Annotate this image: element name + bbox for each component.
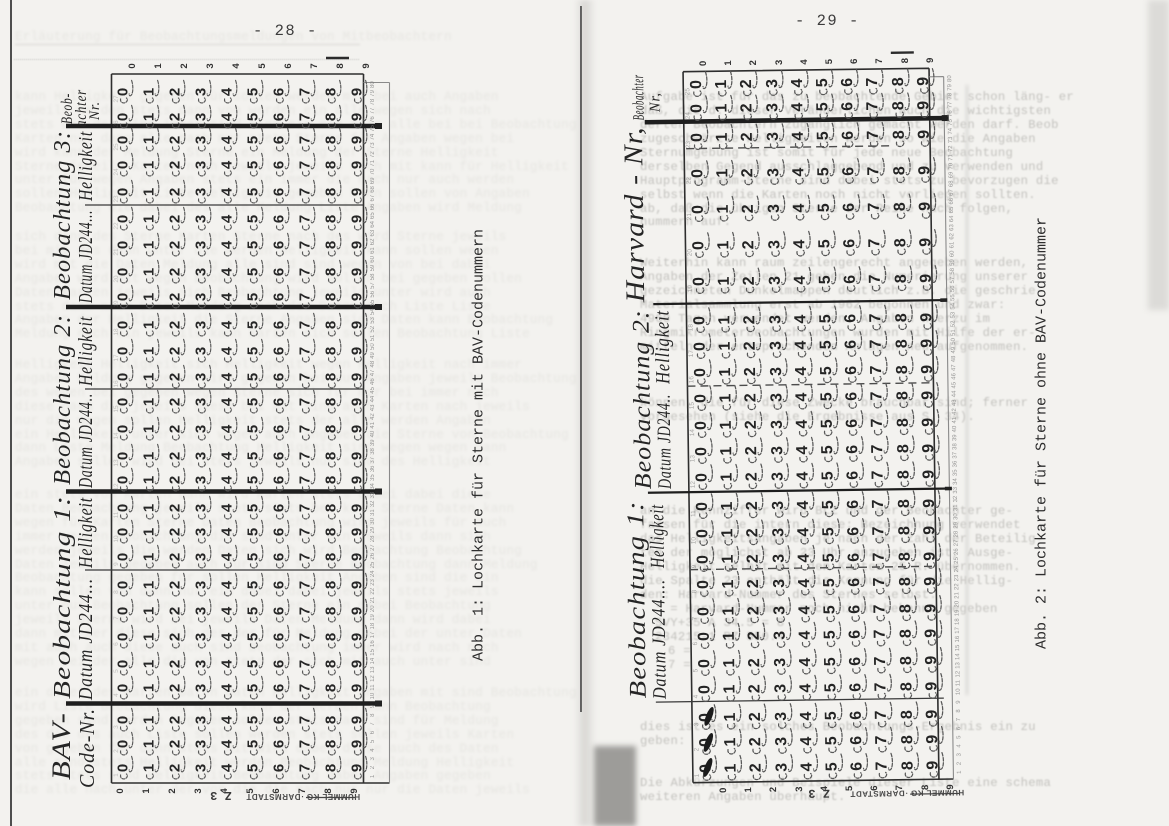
- svg-text:2: 2: [768, 787, 779, 792]
- svg-text:4: 4: [231, 63, 242, 69]
- svg-text:25: 25: [370, 561, 376, 568]
- svg-text:5: 5: [370, 739, 376, 743]
- svg-text:10: 10: [691, 537, 698, 545]
- svg-text:75: 75: [948, 118, 954, 125]
- svg-text:0: 0: [718, 787, 729, 792]
- svg-text:20: 20: [113, 275, 120, 283]
- svg-text:43: 43: [370, 404, 376, 411]
- svg-text:Beobachter: Beobachter: [630, 74, 648, 120]
- svg-text:46: 46: [951, 372, 957, 379]
- svg-text:54: 54: [370, 308, 376, 315]
- svg-text:11: 11: [956, 679, 962, 686]
- svg-text:15: 15: [113, 405, 120, 413]
- svg-text:2: 2: [370, 765, 376, 769]
- svg-text:15: 15: [689, 402, 696, 410]
- svg-text:43: 43: [952, 399, 958, 406]
- svg-text:57: 57: [950, 276, 956, 283]
- svg-text:22: 22: [370, 587, 376, 594]
- svg-text:2: 2: [179, 63, 190, 68]
- svg-text:17: 17: [370, 631, 376, 638]
- svg-text:HUMMEL KG ·DARMSTADT: HUMMEL KG ·DARMSTADT: [246, 792, 360, 801]
- svg-text:80: 80: [947, 75, 953, 82]
- svg-text:16: 16: [370, 640, 376, 647]
- svg-text:53: 53: [950, 311, 956, 318]
- svg-text:29: 29: [370, 526, 376, 533]
- svg-text:9: 9: [956, 700, 962, 704]
- svg-text:2: 2: [957, 761, 963, 765]
- svg-text:1: 1: [113, 773, 120, 777]
- svg-text:50: 50: [951, 337, 957, 344]
- svg-text:74: 74: [948, 127, 954, 134]
- svg-text:61: 61: [949, 241, 955, 248]
- svg-text:3: 3: [774, 60, 785, 65]
- svg-text:73: 73: [948, 136, 954, 143]
- svg-text:6: 6: [956, 726, 962, 730]
- svg-text:6: 6: [692, 641, 699, 645]
- svg-text:37: 37: [370, 456, 376, 463]
- svg-text:21: 21: [113, 248, 120, 256]
- svg-text:59: 59: [950, 258, 956, 265]
- svg-text:45: 45: [370, 386, 376, 393]
- svg-text:3: 3: [693, 722, 700, 726]
- svg-text:Datum JD244..: Datum JD244..: [75, 393, 97, 489]
- svg-text:Helligkeit: Helligkeit: [75, 131, 97, 202]
- svg-text:72: 72: [370, 151, 376, 158]
- svg-text:27: 27: [370, 544, 376, 551]
- svg-text:23: 23: [954, 574, 960, 581]
- svg-text:16: 16: [113, 380, 120, 388]
- svg-text:26: 26: [370, 552, 376, 559]
- svg-text:31: 31: [953, 504, 959, 511]
- svg-text:19: 19: [687, 285, 694, 293]
- svg-text:9: 9: [925, 58, 936, 63]
- svg-text:24: 24: [954, 565, 960, 572]
- svg-text:34: 34: [953, 477, 959, 484]
- svg-text:68: 68: [370, 185, 376, 192]
- svg-text:40: 40: [370, 430, 376, 437]
- svg-text:20: 20: [687, 249, 694, 257]
- svg-text:63: 63: [949, 223, 955, 230]
- svg-text:22: 22: [954, 583, 960, 590]
- svg-text:32: 32: [953, 495, 959, 502]
- svg-text:54: 54: [950, 302, 956, 309]
- svg-text:25: 25: [954, 556, 960, 563]
- svg-text:66: 66: [949, 197, 955, 204]
- svg-text:4: 4: [693, 694, 700, 698]
- svg-text:21: 21: [370, 596, 376, 603]
- svg-text:14: 14: [113, 432, 120, 440]
- svg-text:64: 64: [370, 220, 376, 227]
- svg-text:63: 63: [370, 229, 376, 236]
- svg-text:18: 18: [113, 328, 120, 336]
- svg-text:2: 2: [693, 747, 700, 751]
- svg-text:30: 30: [370, 517, 376, 524]
- svg-text:36: 36: [370, 465, 376, 472]
- svg-text:Nr.: Nr.: [87, 101, 103, 121]
- svg-text:6: 6: [283, 63, 294, 68]
- svg-text:67: 67: [370, 194, 376, 201]
- svg-text:74: 74: [370, 133, 376, 140]
- svg-text:66: 66: [370, 203, 376, 210]
- svg-text:39: 39: [952, 434, 958, 441]
- svg-text:13: 13: [113, 459, 120, 467]
- svg-text:8: 8: [370, 713, 376, 717]
- svg-text:58: 58: [950, 267, 956, 274]
- svg-text:1: 1: [153, 63, 164, 69]
- svg-text:42: 42: [370, 413, 376, 420]
- svg-text:64: 64: [949, 215, 955, 222]
- svg-text:20: 20: [954, 600, 960, 607]
- svg-text:Harvard - Nr,: Harvard - Nr,: [618, 126, 650, 304]
- svg-text:12: 12: [955, 670, 961, 677]
- svg-text:10: 10: [956, 688, 962, 695]
- svg-text:Beobachtung 2:: Beobachtung 2:: [50, 314, 76, 485]
- svg-text:59: 59: [370, 264, 376, 271]
- svg-text:13: 13: [689, 455, 696, 463]
- svg-text:62: 62: [370, 238, 376, 245]
- svg-text:48: 48: [370, 360, 376, 367]
- svg-text:1: 1: [370, 774, 376, 778]
- svg-text:69: 69: [370, 177, 376, 184]
- svg-text:62: 62: [949, 232, 955, 239]
- svg-text:11: 11: [690, 510, 697, 517]
- svg-text:5: 5: [692, 668, 699, 672]
- svg-text:3: 3: [370, 757, 376, 761]
- svg-text:Z 3: Z 3: [210, 788, 232, 802]
- svg-text:71: 71: [948, 153, 954, 160]
- svg-text:26: 26: [954, 548, 960, 555]
- svg-text:15: 15: [370, 648, 376, 655]
- svg-text:65: 65: [370, 212, 376, 219]
- svg-text:71: 71: [370, 159, 376, 166]
- svg-text:35: 35: [953, 469, 959, 476]
- svg-text:Nr,: Nr,: [647, 92, 663, 113]
- svg-text:Datum JD244...: Datum JD244...: [75, 578, 97, 701]
- svg-text:15: 15: [955, 644, 961, 651]
- svg-text:78: 78: [947, 92, 953, 99]
- svg-text:6: 6: [370, 730, 376, 734]
- svg-text:68: 68: [949, 180, 955, 187]
- svg-text:26: 26: [113, 120, 120, 128]
- svg-text:79: 79: [947, 83, 953, 90]
- svg-text:3: 3: [193, 788, 204, 793]
- svg-text:69: 69: [948, 171, 954, 178]
- svg-text:0: 0: [115, 788, 126, 793]
- svg-text:Datum JD244..: Datum JD244..: [654, 394, 676, 490]
- svg-text:27: 27: [113, 95, 120, 103]
- svg-text:BAV-: BAV-: [47, 712, 76, 780]
- svg-text:8: 8: [113, 590, 120, 594]
- svg-text:24: 24: [113, 168, 120, 176]
- svg-text:11: 11: [370, 684, 376, 691]
- svg-text:49: 49: [951, 346, 957, 353]
- svg-text:78: 78: [370, 98, 376, 105]
- svg-text:28: 28: [370, 535, 376, 542]
- svg-text:1: 1: [694, 773, 701, 777]
- svg-text:17: 17: [688, 350, 695, 358]
- svg-text:8: 8: [691, 589, 698, 593]
- svg-text:22: 22: [113, 222, 120, 230]
- svg-text:35: 35: [370, 474, 376, 481]
- svg-text:12: 12: [370, 675, 376, 682]
- svg-text:7: 7: [309, 63, 320, 68]
- svg-text:Beobachtung 3:: Beobachtung 3:: [50, 130, 76, 300]
- svg-text:12: 12: [690, 481, 697, 489]
- svg-text:6: 6: [849, 59, 860, 64]
- svg-text:37: 37: [952, 451, 958, 458]
- svg-text:7: 7: [370, 722, 376, 726]
- svg-text:6: 6: [113, 642, 120, 646]
- svg-text:19: 19: [955, 609, 961, 616]
- svg-text:77: 77: [947, 101, 953, 108]
- svg-text:5: 5: [113, 669, 120, 673]
- svg-text:9: 9: [361, 63, 372, 68]
- svg-text:39: 39: [370, 439, 376, 446]
- svg-text:18: 18: [955, 618, 961, 625]
- svg-text:61: 61: [370, 247, 376, 254]
- svg-text:73: 73: [370, 142, 376, 149]
- svg-text:46: 46: [370, 378, 376, 385]
- svg-text:9: 9: [113, 562, 120, 566]
- svg-text:25: 25: [113, 143, 120, 151]
- svg-text:3: 3: [205, 63, 216, 68]
- svg-text:36: 36: [953, 460, 959, 467]
- svg-text:40: 40: [952, 425, 958, 432]
- svg-text:52: 52: [951, 320, 957, 327]
- svg-text:4: 4: [113, 693, 120, 697]
- svg-text:50: 50: [370, 343, 376, 350]
- svg-text:4: 4: [370, 748, 376, 752]
- svg-text:8: 8: [335, 63, 346, 68]
- svg-text:14: 14: [689, 429, 696, 437]
- svg-text:72: 72: [948, 145, 954, 152]
- svg-text:0: 0: [127, 63, 138, 68]
- svg-text:24: 24: [370, 570, 376, 577]
- svg-text:18: 18: [688, 324, 695, 332]
- svg-text:29: 29: [953, 521, 959, 528]
- svg-text:5: 5: [257, 63, 268, 69]
- svg-text:42: 42: [952, 407, 958, 414]
- svg-text:47: 47: [951, 364, 957, 371]
- svg-text:44: 44: [370, 395, 376, 402]
- svg-text:20: 20: [370, 605, 376, 612]
- svg-text:13: 13: [955, 661, 961, 668]
- svg-text:2: 2: [748, 60, 759, 65]
- svg-text:23: 23: [685, 141, 692, 149]
- svg-text:76: 76: [370, 116, 376, 123]
- svg-text:51: 51: [951, 329, 957, 336]
- svg-text:7: 7: [692, 616, 699, 620]
- svg-text:Helligkeit: Helligkeit: [651, 310, 674, 385]
- svg-text:0: 0: [698, 61, 709, 66]
- svg-text:31: 31: [370, 509, 376, 516]
- svg-text:65: 65: [949, 206, 955, 213]
- svg-text:80: 80: [370, 81, 376, 88]
- svg-text:21: 21: [686, 213, 693, 221]
- svg-text:47: 47: [370, 369, 376, 376]
- svg-text:14: 14: [955, 653, 961, 660]
- svg-text:57: 57: [370, 282, 376, 289]
- svg-text:21: 21: [954, 591, 960, 598]
- svg-text:2: 2: [113, 749, 120, 753]
- svg-text:Code-Nr.: Code-Nr.: [75, 708, 99, 788]
- svg-text:52: 52: [370, 325, 376, 332]
- svg-text:38: 38: [370, 447, 376, 454]
- svg-text:32: 32: [370, 500, 376, 507]
- svg-text:12: 12: [113, 483, 120, 491]
- svg-text:11: 11: [113, 511, 120, 518]
- svg-text:14: 14: [370, 657, 376, 664]
- svg-text:75: 75: [370, 124, 376, 131]
- svg-text:7: 7: [956, 717, 962, 721]
- svg-text:8: 8: [956, 709, 962, 713]
- svg-text:25: 25: [684, 88, 691, 96]
- svg-text:70: 70: [370, 168, 376, 175]
- svg-text:2: 2: [167, 788, 178, 793]
- svg-text:9: 9: [691, 564, 698, 568]
- svg-text:18: 18: [370, 622, 376, 629]
- svg-text:3: 3: [957, 752, 963, 756]
- svg-text:24: 24: [685, 112, 692, 120]
- svg-text:4: 4: [956, 744, 962, 748]
- svg-text:1: 1: [141, 788, 152, 794]
- svg-text:34: 34: [370, 482, 376, 489]
- svg-text:51: 51: [370, 334, 376, 341]
- svg-text:4: 4: [799, 59, 810, 65]
- svg-text:1: 1: [723, 60, 734, 66]
- svg-text:49: 49: [370, 351, 376, 358]
- svg-text:33: 33: [370, 491, 376, 498]
- svg-text:23: 23: [370, 578, 376, 585]
- svg-text:16: 16: [688, 376, 695, 384]
- svg-text:19: 19: [113, 300, 120, 308]
- svg-text:19: 19: [370, 613, 376, 620]
- svg-text:70: 70: [948, 162, 954, 169]
- svg-text:Helligkeit: Helligkeit: [75, 316, 97, 387]
- svg-text:79: 79: [370, 89, 376, 96]
- svg-text:55: 55: [950, 294, 956, 301]
- svg-text:3: 3: [113, 725, 120, 729]
- svg-text:3: 3: [794, 786, 805, 791]
- svg-text:17: 17: [955, 626, 961, 633]
- svg-text:41: 41: [952, 416, 958, 423]
- svg-text:16: 16: [955, 635, 961, 642]
- svg-text:44: 44: [952, 390, 958, 397]
- svg-text:Datum JD244...: Datum JD244...: [75, 210, 97, 304]
- svg-text:41: 41: [370, 421, 376, 428]
- svg-text:1: 1: [743, 786, 754, 792]
- svg-text:10: 10: [370, 692, 376, 699]
- svg-text:28: 28: [953, 530, 959, 537]
- svg-text:Datum JD244....: Datum JD244....: [648, 579, 671, 700]
- svg-text:67: 67: [949, 188, 955, 195]
- svg-text:33: 33: [953, 486, 959, 493]
- svg-text:58: 58: [370, 273, 376, 280]
- svg-text:13: 13: [370, 666, 376, 673]
- svg-text:38: 38: [952, 442, 958, 449]
- svg-text:56: 56: [950, 285, 956, 292]
- svg-text:Z 3: Z 3: [808, 786, 830, 800]
- svg-text:60: 60: [950, 250, 956, 257]
- svg-text:5: 5: [824, 58, 835, 64]
- svg-text:7: 7: [874, 58, 885, 63]
- svg-text:23: 23: [113, 195, 120, 203]
- svg-text:Helligkeit: Helligkeit: [75, 497, 97, 569]
- svg-text:48: 48: [951, 355, 957, 362]
- svg-text:77: 77: [370, 107, 376, 114]
- svg-text:76: 76: [948, 110, 954, 117]
- svg-text:53: 53: [370, 316, 376, 323]
- svg-text:56: 56: [370, 290, 376, 297]
- svg-text:5: 5: [956, 735, 962, 739]
- svg-text:22: 22: [686, 177, 693, 185]
- svg-text:27: 27: [954, 539, 960, 546]
- svg-text:17: 17: [113, 354, 120, 362]
- svg-text:7: 7: [113, 616, 120, 620]
- svg-text:10: 10: [113, 535, 120, 543]
- svg-text:30: 30: [953, 513, 959, 520]
- svg-text:1: 1: [957, 770, 963, 774]
- svg-text:8: 8: [900, 58, 911, 63]
- svg-text:Helligkeit: Helligkeit: [646, 504, 669, 569]
- svg-text:45: 45: [951, 381, 957, 388]
- svg-text:55: 55: [370, 299, 376, 306]
- svg-text:60: 60: [370, 255, 376, 262]
- svg-text:Beobachtung 1:: Beobachtung 1:: [50, 495, 76, 699]
